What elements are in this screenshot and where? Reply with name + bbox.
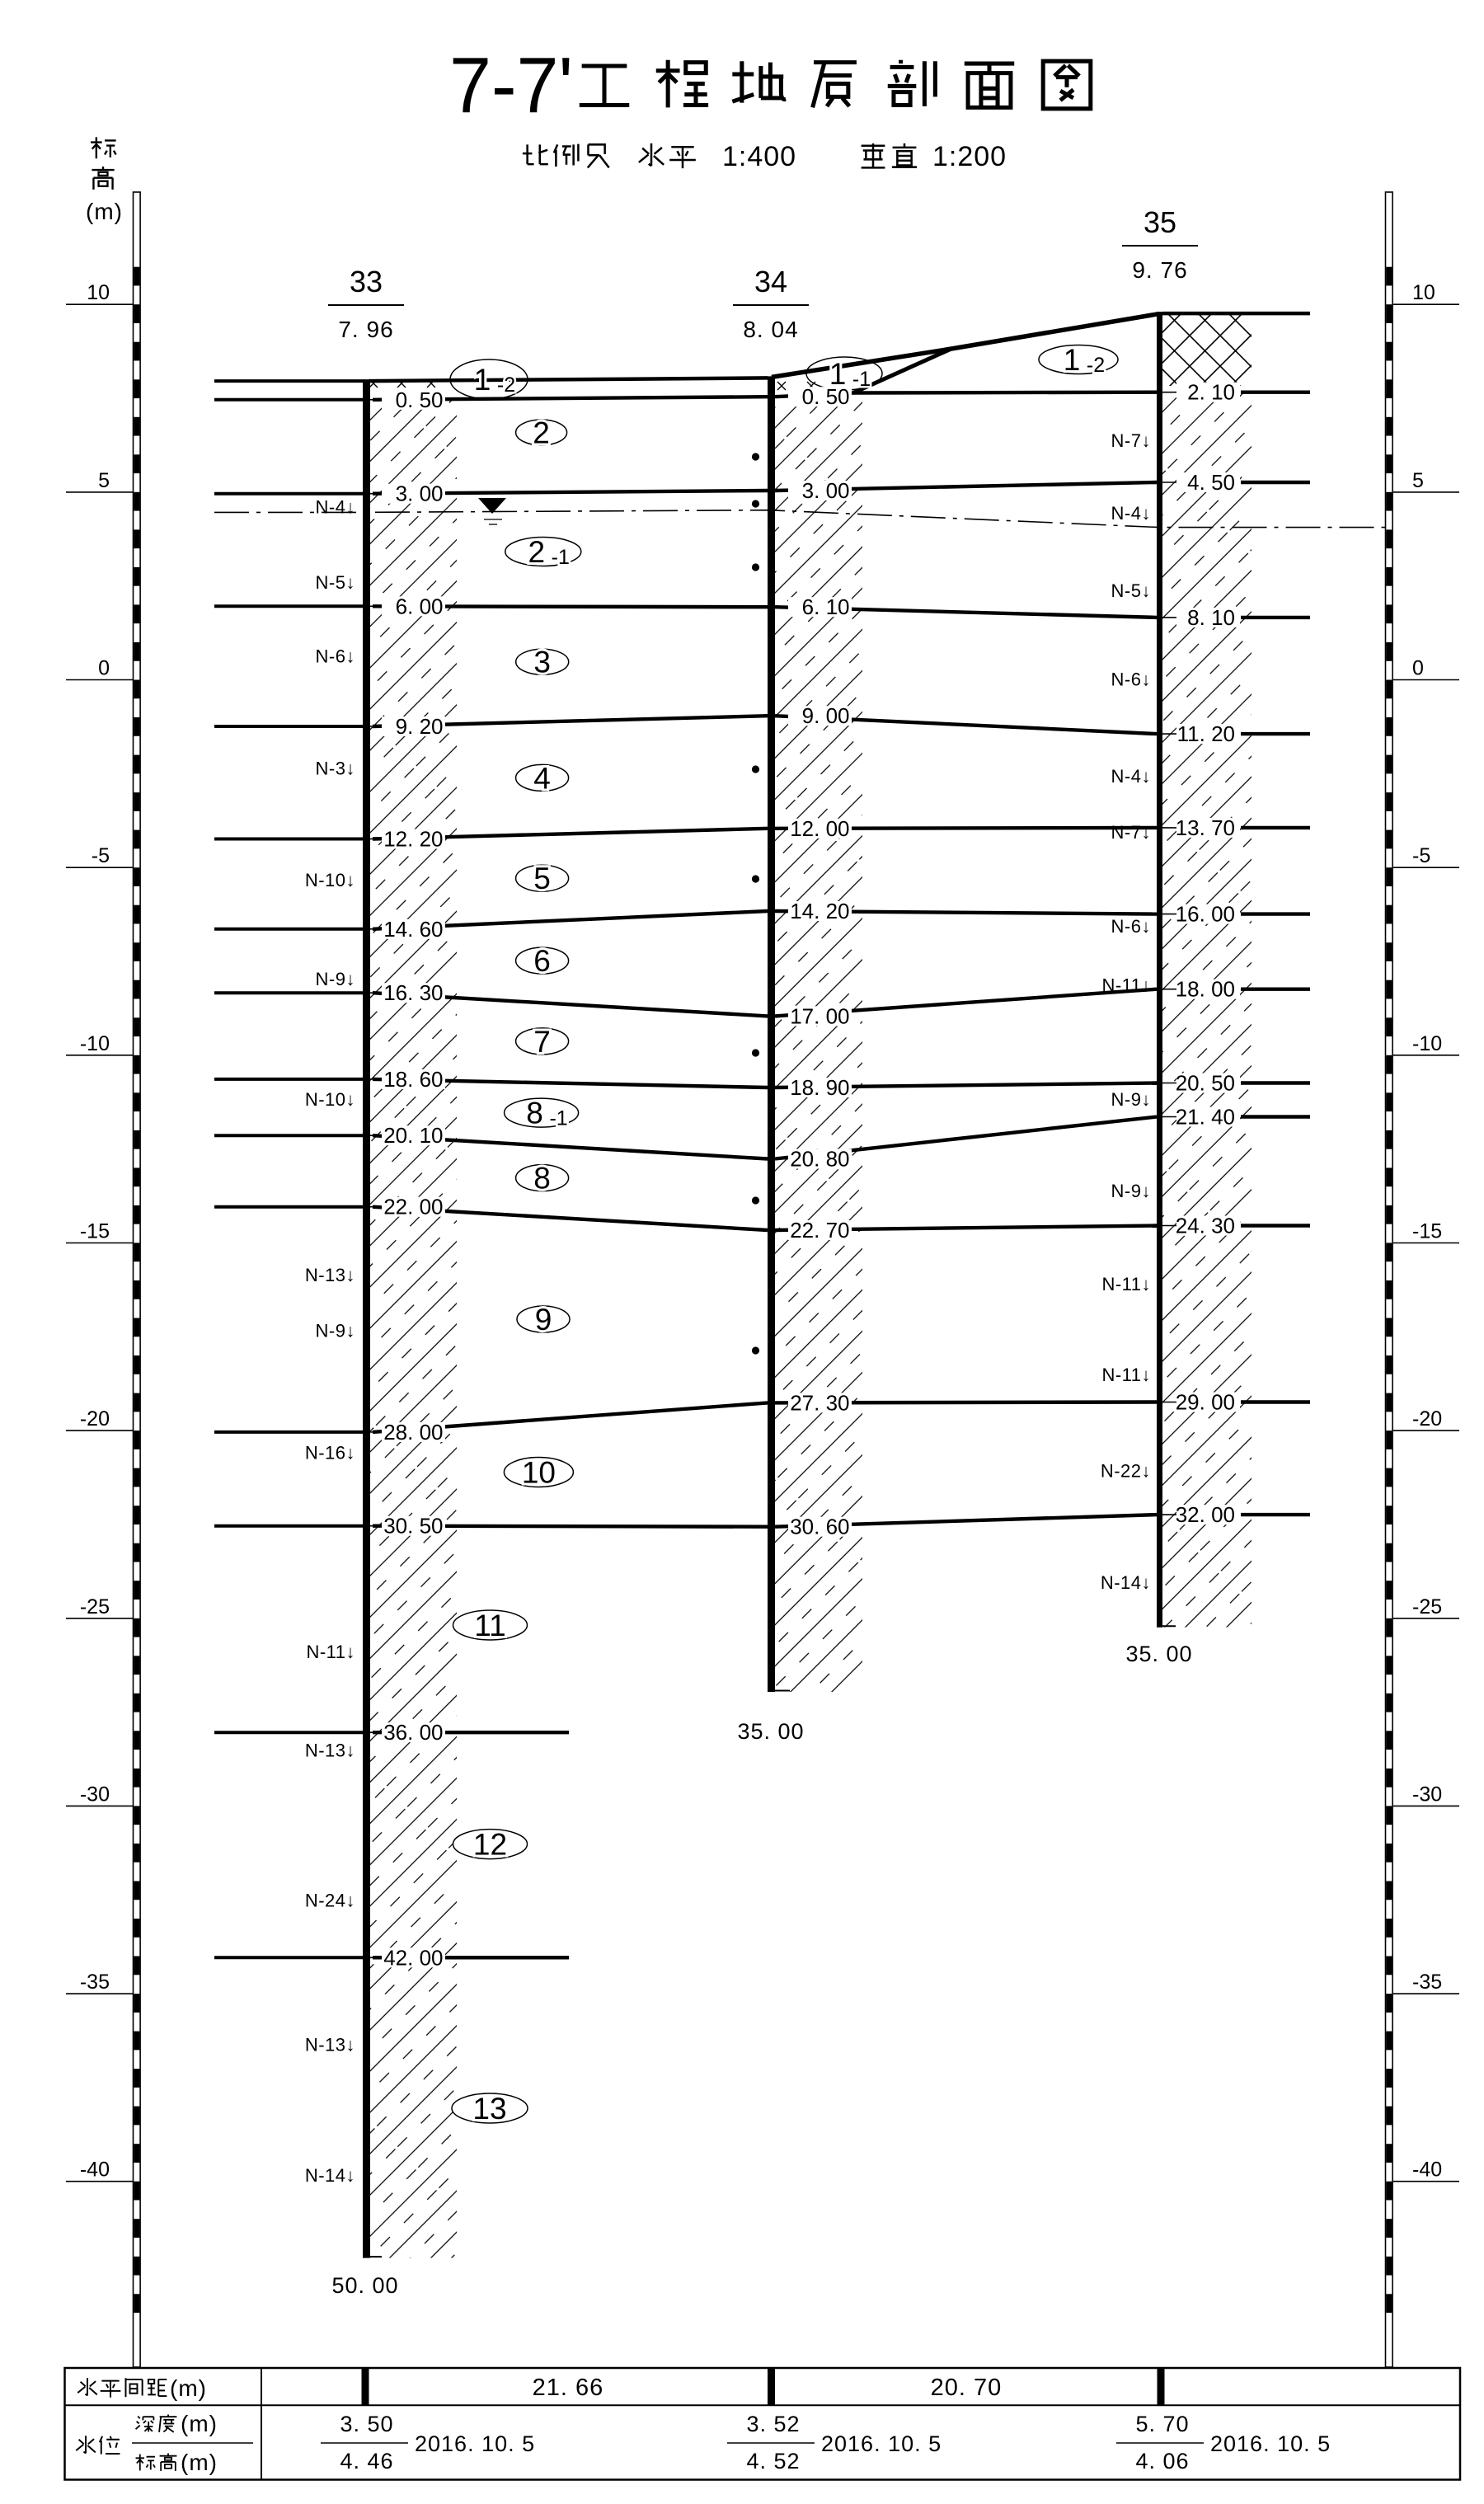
svg-text:7-7': 7-7' (449, 41, 573, 129)
svg-text:-20: -20 (1412, 1407, 1442, 1431)
svg-text:-35: -35 (1412, 1971, 1442, 1994)
svg-text:-40: -40 (1412, 2159, 1442, 2182)
svg-text:4. 52: 4. 52 (746, 2449, 800, 2473)
svg-text:3: 3 (533, 646, 551, 679)
svg-text:20. 50: 20. 50 (1176, 1071, 1235, 1096)
svg-text:N-6↓: N-6↓ (1111, 669, 1151, 690)
svg-text:N-14↓: N-14↓ (1101, 1572, 1151, 1593)
svg-text:N-10↓: N-10↓ (305, 1089, 355, 1110)
svg-text:12. 00: 12. 00 (790, 816, 849, 841)
svg-text:12. 20: 12. 20 (383, 827, 443, 852)
svg-text:6. 00: 6. 00 (396, 594, 444, 618)
svg-text:24. 30: 24. 30 (1176, 1214, 1235, 1238)
svg-text:20. 80: 20. 80 (790, 1147, 849, 1172)
svg-text:8. 10: 8. 10 (1187, 605, 1235, 630)
svg-text:7: 7 (533, 1025, 551, 1059)
svg-text:N-11↓: N-11↓ (1101, 1274, 1151, 1294)
svg-text:22. 00: 22. 00 (383, 1195, 443, 1219)
svg-text:9. 20: 9. 20 (396, 714, 444, 739)
svg-text:35: 35 (1144, 205, 1176, 239)
svg-text:-5: -5 (92, 844, 110, 867)
svg-text:N-9↓: N-9↓ (1111, 1181, 1151, 1201)
svg-text:-2: -2 (1087, 354, 1105, 377)
svg-text:6: 6 (533, 944, 551, 978)
svg-text:-2: -2 (497, 373, 515, 397)
svg-text:N-9↓: N-9↓ (1111, 1089, 1151, 1110)
svg-text:N-5↓: N-5↓ (1111, 580, 1151, 601)
svg-text:N-4↓: N-4↓ (1111, 766, 1151, 787)
svg-text:-1: -1 (549, 1107, 567, 1130)
svg-text:33: 33 (350, 265, 383, 298)
svg-text:27. 30: 27. 30 (790, 1390, 849, 1415)
svg-text:N-9↓: N-9↓ (316, 969, 355, 989)
svg-text:-1: -1 (852, 368, 871, 391)
svg-text:N-14↓: N-14↓ (305, 2165, 355, 2186)
svg-text:4. 50: 4. 50 (1187, 470, 1235, 495)
svg-text:6. 10: 6. 10 (802, 594, 850, 619)
svg-text:10: 10 (522, 1456, 556, 1490)
svg-text:-30: -30 (80, 1783, 110, 1806)
svg-text:1:200: 1:200 (932, 141, 1007, 172)
svg-text:2016. 10. 5: 2016. 10. 5 (821, 2431, 942, 2456)
svg-text:16. 30: 16. 30 (383, 980, 443, 1005)
svg-text:-40: -40 (80, 2159, 110, 2182)
svg-text:1:400: 1:400 (722, 141, 796, 172)
svg-text:10: 10 (87, 281, 110, 304)
svg-text:10: 10 (1412, 281, 1435, 304)
svg-text:8: 8 (526, 1097, 543, 1130)
svg-text:2016. 10. 5: 2016. 10. 5 (415, 2431, 535, 2456)
svg-text:N-11↓: N-11↓ (1101, 1365, 1151, 1385)
svg-text:1: 1 (474, 363, 491, 397)
svg-text:14. 20: 14. 20 (790, 899, 849, 923)
svg-text:5. 70: 5. 70 (1135, 2412, 1189, 2436)
svg-text:42. 00: 42. 00 (383, 1945, 443, 1970)
svg-text:-25: -25 (1412, 1595, 1442, 1618)
svg-text:-20: -20 (80, 1407, 110, 1431)
svg-text:20. 70: 20. 70 (931, 2375, 1003, 2401)
svg-text:N-7↓: N-7↓ (1111, 430, 1151, 451)
svg-text:18. 00: 18. 00 (1176, 977, 1235, 1002)
svg-text:5: 5 (533, 862, 551, 895)
svg-text:N-3↓: N-3↓ (316, 758, 355, 778)
svg-text:11: 11 (474, 1609, 505, 1642)
svg-text:N-16↓: N-16↓ (305, 1443, 355, 1463)
svg-text:35. 00: 35. 00 (737, 1719, 804, 1744)
svg-text:13: 13 (472, 2092, 506, 2126)
svg-text:50. 00: 50. 00 (331, 2273, 398, 2298)
svg-text:N-5↓: N-5↓ (316, 572, 355, 593)
svg-text:-15: -15 (80, 1220, 110, 1243)
svg-text:32. 00: 32. 00 (1176, 1502, 1235, 1527)
svg-text:-15: -15 (1412, 1220, 1442, 1243)
svg-text:2: 2 (528, 535, 546, 569)
svg-text:2: 2 (533, 416, 550, 450)
svg-text:(m): (m) (181, 2411, 218, 2436)
svg-text:0: 0 (98, 657, 110, 680)
svg-text:18. 60: 18. 60 (383, 1067, 443, 1092)
svg-text:4. 46: 4. 46 (340, 2449, 393, 2473)
svg-text:1: 1 (829, 357, 847, 391)
svg-text:22. 70: 22. 70 (790, 1218, 849, 1243)
svg-text:2016. 10. 5: 2016. 10. 5 (1210, 2431, 1331, 2456)
svg-text:N-13↓: N-13↓ (305, 2034, 355, 2055)
svg-text:N-6↓: N-6↓ (316, 646, 355, 667)
svg-text:21. 66: 21. 66 (533, 2375, 604, 2401)
svg-text:9. 00: 9. 00 (802, 703, 850, 728)
svg-text:2. 10: 2. 10 (1187, 380, 1235, 405)
svg-text:4. 06: 4. 06 (1135, 2449, 1189, 2473)
svg-text:3. 00: 3. 00 (802, 478, 850, 503)
svg-text:28. 00: 28. 00 (383, 1420, 443, 1445)
svg-text:30. 60: 30. 60 (790, 1515, 849, 1539)
svg-text:N-11↓: N-11↓ (306, 1642, 355, 1662)
svg-text:N-13↓: N-13↓ (305, 1265, 355, 1285)
svg-text:-35: -35 (80, 1971, 110, 1994)
svg-text:0. 50: 0. 50 (396, 388, 444, 412)
svg-text:29. 00: 29. 00 (1176, 1390, 1235, 1415)
svg-text:36. 00: 36. 00 (383, 1720, 443, 1745)
svg-text:-30: -30 (1412, 1783, 1442, 1806)
svg-text:4: 4 (533, 761, 551, 795)
svg-text:N-10↓: N-10↓ (305, 870, 355, 890)
svg-text:13. 70: 13. 70 (1176, 815, 1235, 840)
svg-text:N-9↓: N-9↓ (316, 1321, 355, 1341)
svg-text:3. 52: 3. 52 (746, 2412, 800, 2436)
svg-text:8. 04: 8. 04 (743, 317, 798, 342)
svg-text:9. 76: 9. 76 (1132, 257, 1187, 283)
svg-text:(m): (m) (86, 199, 123, 224)
svg-text:N-13↓: N-13↓ (305, 1741, 355, 1761)
svg-text:N-7↓: N-7↓ (1111, 822, 1151, 843)
svg-text:-10: -10 (80, 1032, 110, 1055)
svg-text:0: 0 (1412, 657, 1424, 680)
svg-text:7. 96: 7. 96 (338, 317, 393, 342)
svg-text:30. 50: 30. 50 (383, 1514, 443, 1539)
svg-text:5: 5 (98, 469, 110, 492)
svg-text:20. 10: 20. 10 (383, 1123, 443, 1148)
svg-text:1: 1 (1064, 343, 1081, 377)
svg-text:-5: -5 (1412, 844, 1430, 867)
svg-text:14. 60: 14. 60 (383, 917, 443, 942)
svg-text:N-4↓: N-4↓ (316, 497, 355, 518)
svg-text:(m): (m) (170, 2375, 207, 2401)
svg-text:3. 50: 3. 50 (340, 2412, 393, 2436)
svg-text:3. 00: 3. 00 (396, 482, 444, 506)
svg-text:N-11↓: N-11↓ (1101, 975, 1151, 996)
svg-text:17. 00: 17. 00 (790, 1003, 849, 1028)
svg-text:21. 40: 21. 40 (1176, 1105, 1235, 1130)
svg-text:18. 90: 18. 90 (790, 1075, 849, 1100)
svg-text:-1: -1 (552, 546, 570, 569)
svg-text:5: 5 (1412, 469, 1424, 492)
svg-text:(m): (m) (181, 2450, 218, 2475)
svg-text:N-24↓: N-24↓ (305, 1891, 355, 1911)
svg-text:12: 12 (473, 1828, 507, 1862)
svg-text:-25: -25 (80, 1595, 110, 1618)
svg-text:-10: -10 (1412, 1032, 1442, 1055)
svg-text:9: 9 (535, 1303, 552, 1337)
svg-text:N-6↓: N-6↓ (1111, 916, 1151, 937)
svg-text:34: 34 (754, 265, 787, 298)
svg-text:N-22↓: N-22↓ (1101, 1460, 1151, 1481)
svg-text:16. 00: 16. 00 (1176, 902, 1235, 927)
svg-text:N-4↓: N-4↓ (1111, 503, 1151, 524)
svg-text:11. 20: 11. 20 (1177, 721, 1235, 746)
svg-text:8: 8 (533, 1162, 551, 1196)
svg-text:35. 00: 35. 00 (1125, 1642, 1192, 1666)
